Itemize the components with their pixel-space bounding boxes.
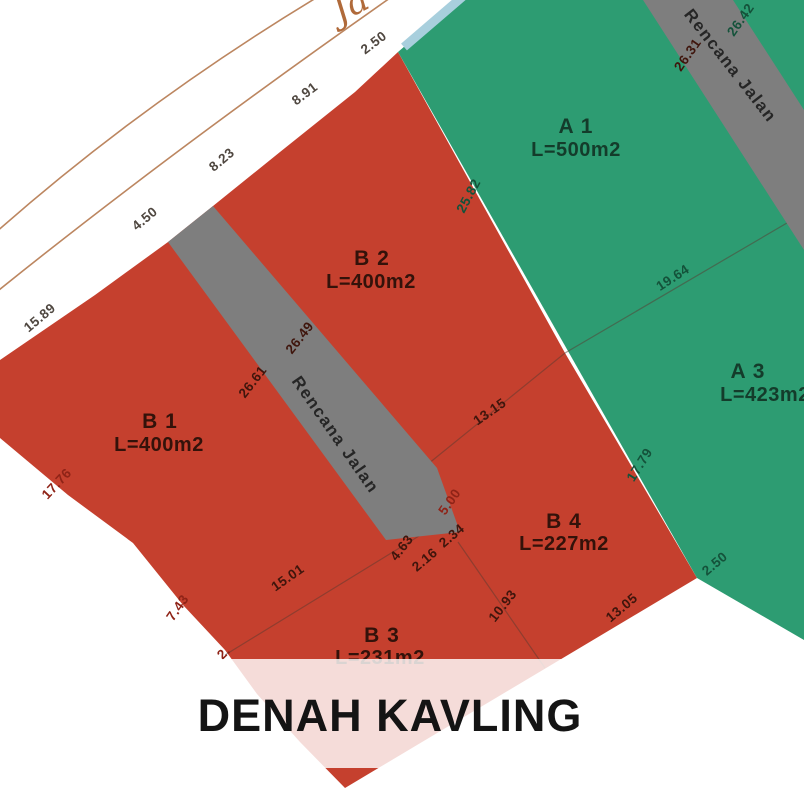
plot-label-b1-id: B 1	[142, 410, 178, 433]
plot-label-b2-id: B 2	[354, 247, 390, 270]
dim-front-b2-left: 8.23	[206, 145, 237, 175]
plot-label-b4-area: L=227m2	[519, 533, 609, 555]
plot-label-a3-area: L=423m2	[720, 384, 804, 406]
banner-title: DENAH KAVLING	[198, 690, 583, 741]
plot-label-b2-area: L=400m2	[326, 271, 416, 293]
plot-label-a1-id: A 1	[559, 115, 594, 138]
plot-label-b3-id: B 3	[364, 624, 400, 647]
site-plan-screenshot: Ja Rencana Jalan Rencana Jalan 26.42 26.…	[0, 0, 804, 804]
site-plan-map: Ja Rencana Jalan Rencana Jalan 26.42 26.…	[0, 0, 804, 804]
plot-label-b1-area: L=400m2	[114, 434, 204, 456]
plot-label-a3-id: A 3	[731, 360, 766, 383]
plot-label-a1-area: L=500m2	[531, 139, 621, 161]
dim-front-b2-right: 8.91	[289, 79, 321, 108]
street-name-fragment: Ja	[319, 0, 376, 35]
dim-front-green: 2.50	[358, 28, 390, 57]
dim-front-road: 4.50	[129, 204, 160, 234]
plot-label-b4-id: B 4	[546, 510, 582, 533]
